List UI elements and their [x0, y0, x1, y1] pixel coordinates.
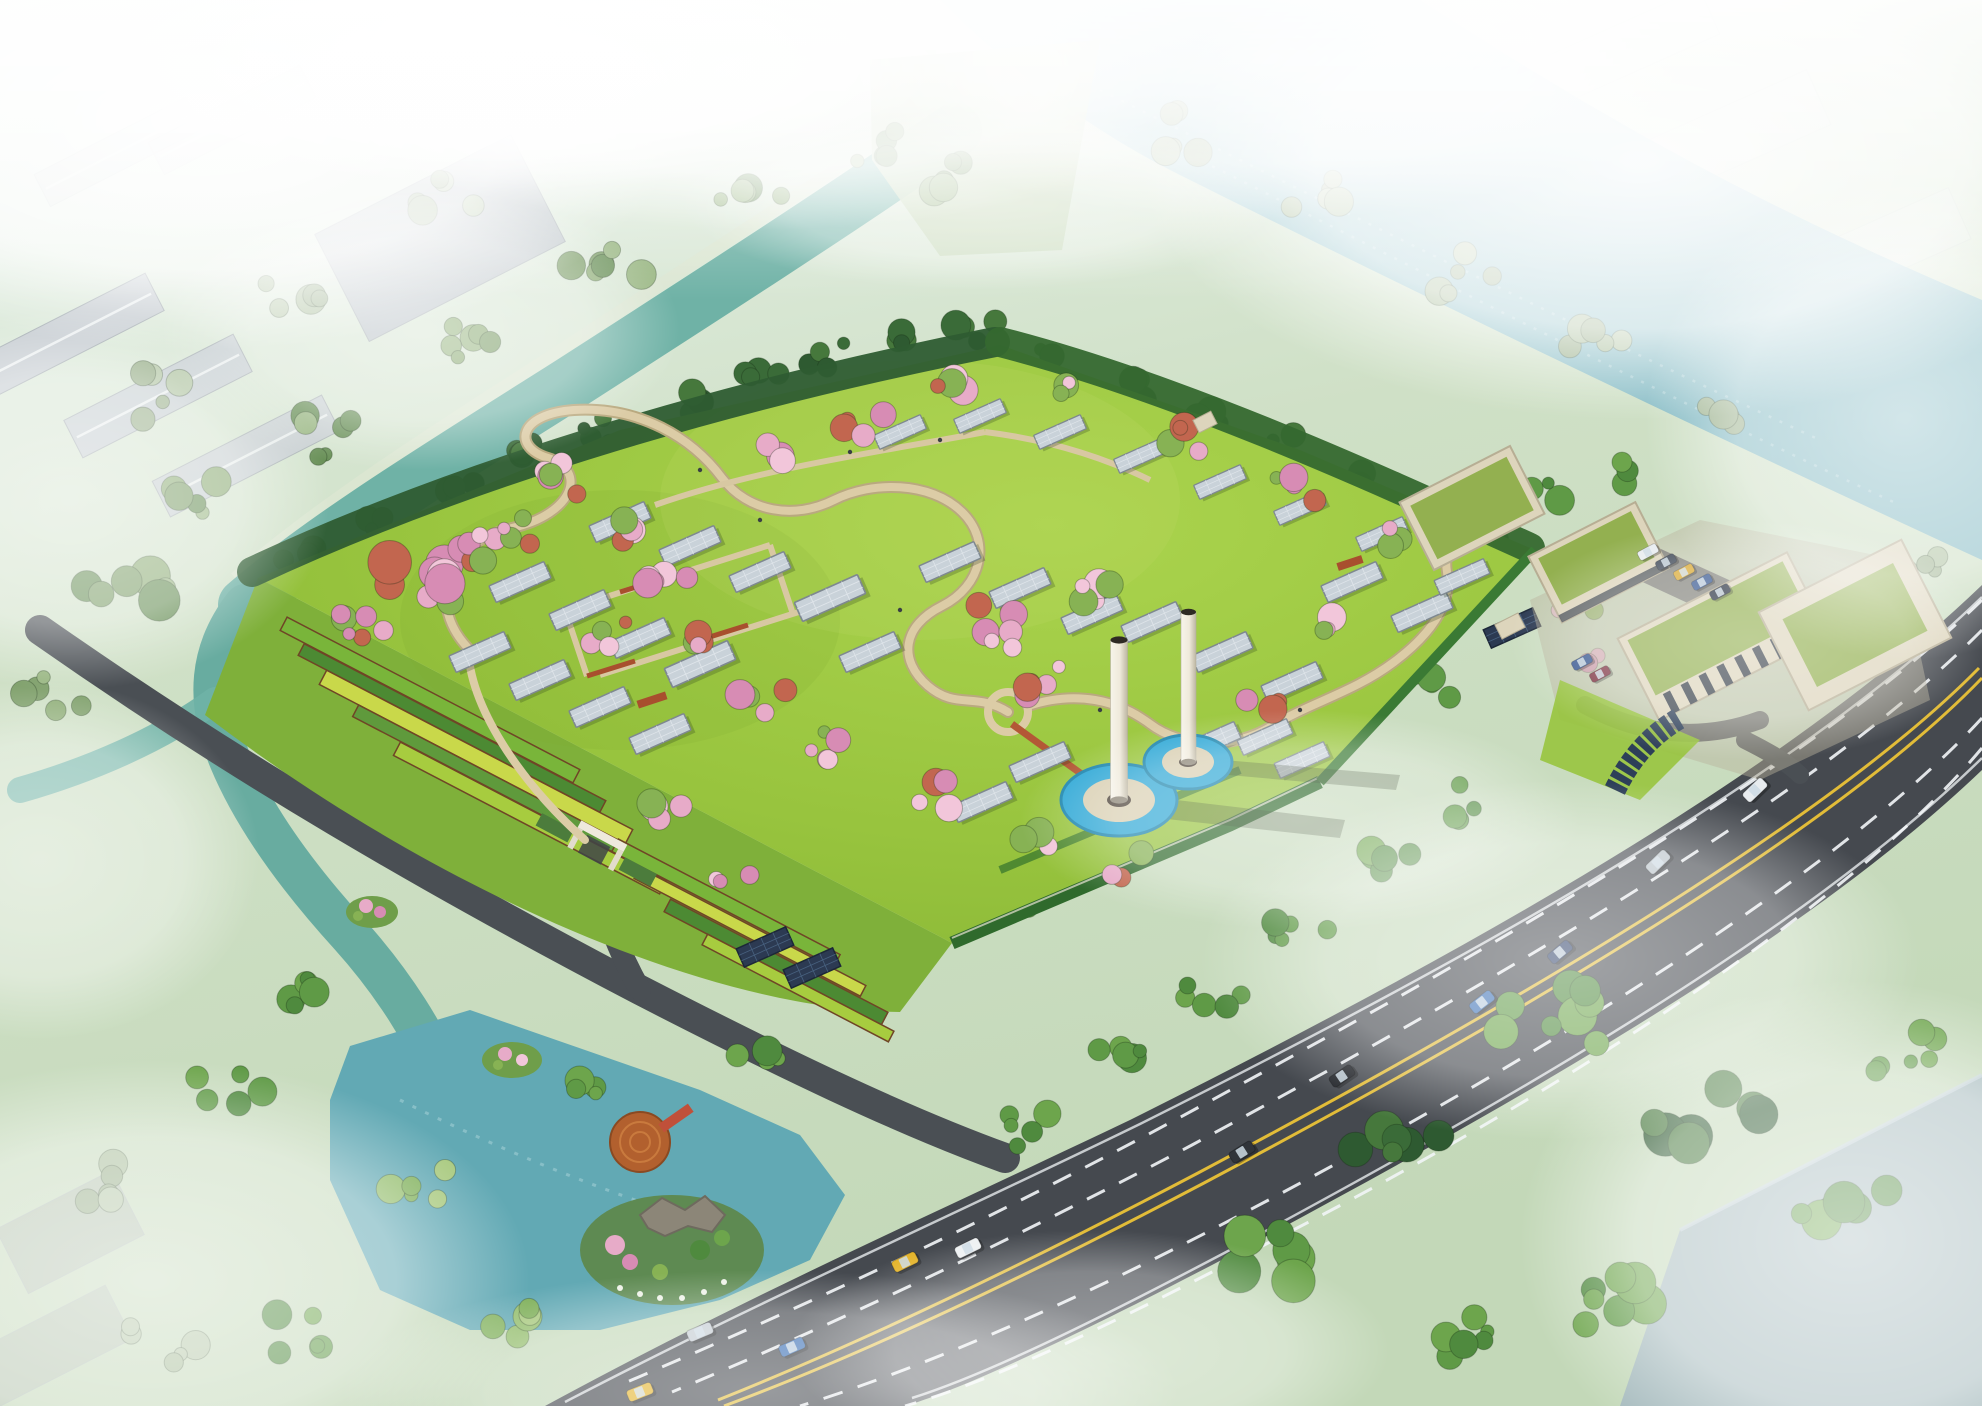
- cherry-tree: [1378, 533, 1404, 559]
- tree: [1179, 977, 1196, 994]
- cherry-tree: [343, 628, 355, 640]
- cherry-tree: [374, 621, 394, 641]
- tree: [1133, 1044, 1146, 1057]
- cherry-tree: [852, 424, 875, 447]
- cherry-tree: [805, 744, 818, 757]
- cherry-tree: [966, 592, 992, 618]
- cherry-tree: [818, 750, 838, 770]
- cherry-tree: [425, 564, 465, 604]
- fog-patch: [1510, 520, 1982, 760]
- cherry-tree: [469, 547, 496, 574]
- cherry-tree: [498, 522, 510, 534]
- cherry-tree: [826, 728, 851, 753]
- cherry-tree: [1053, 660, 1066, 673]
- cherry-tree: [368, 541, 412, 585]
- tree: [726, 1044, 749, 1067]
- cherry-tree: [676, 567, 697, 588]
- tree: [1267, 1220, 1294, 1247]
- tree: [1088, 1039, 1110, 1061]
- tree: [1612, 452, 1632, 472]
- aerial-rendering: [0, 0, 1982, 1406]
- tree: [567, 1079, 586, 1098]
- tree: [1438, 686, 1460, 708]
- cherry-tree: [740, 866, 759, 885]
- cherry-tree: [935, 795, 962, 822]
- cherry-tree: [725, 680, 755, 710]
- cherry-tree: [756, 704, 774, 722]
- cherry-tree: [637, 789, 666, 818]
- tree: [589, 1086, 602, 1099]
- scene-canvas: [0, 0, 1982, 1406]
- cherry-tree: [931, 379, 946, 394]
- tree: [1022, 1121, 1043, 1142]
- cherry-tree: [331, 605, 350, 624]
- cherry-tree: [599, 637, 619, 657]
- cherry-tree: [984, 633, 999, 648]
- cherry-tree: [354, 629, 371, 646]
- cherry-tree: [568, 485, 586, 503]
- cherry-tree: [1382, 521, 1397, 536]
- cherry-tree: [670, 795, 692, 817]
- tree: [1545, 485, 1575, 515]
- island-small: [482, 1042, 542, 1078]
- tree: [1004, 1118, 1018, 1132]
- tree: [1462, 1305, 1487, 1330]
- cherry-tree: [1173, 420, 1188, 435]
- cherry-tree: [713, 874, 727, 888]
- cherry-tree: [1280, 463, 1308, 491]
- tree: [752, 1036, 782, 1066]
- cherry-tree: [520, 534, 539, 553]
- cherry-tree: [690, 637, 706, 653]
- tree: [837, 337, 849, 349]
- cherry-tree: [774, 679, 797, 702]
- tree: [1450, 1330, 1478, 1358]
- cherry-tree: [1190, 442, 1208, 460]
- cherry-tree: [611, 507, 638, 534]
- cherry-tree: [912, 794, 928, 810]
- cherry-tree: [1075, 579, 1090, 594]
- cherry-tree: [1304, 489, 1326, 511]
- tree: [1009, 1138, 1025, 1154]
- island-small: [346, 896, 398, 928]
- cherry-tree: [619, 616, 631, 628]
- cherry-tree: [539, 463, 562, 486]
- cherry-tree: [1053, 385, 1069, 401]
- cherry-tree: [515, 510, 532, 527]
- top-fog-band: [0, 0, 1982, 300]
- cherry-tree: [1096, 571, 1123, 598]
- cherry-tree: [1236, 689, 1258, 711]
- cherry-tree: [770, 448, 796, 474]
- cherry-tree: [1013, 673, 1041, 701]
- cherry-tree: [870, 402, 896, 428]
- cherry-tree: [1003, 638, 1022, 657]
- tree: [1542, 477, 1554, 489]
- cherry-tree: [356, 606, 377, 627]
- cherry-tree: [472, 527, 488, 543]
- cherry-tree: [1315, 621, 1333, 639]
- cherry-tree: [934, 770, 957, 793]
- tree: [1383, 1142, 1403, 1162]
- tree: [299, 977, 329, 1007]
- cherry-tree: [633, 568, 663, 598]
